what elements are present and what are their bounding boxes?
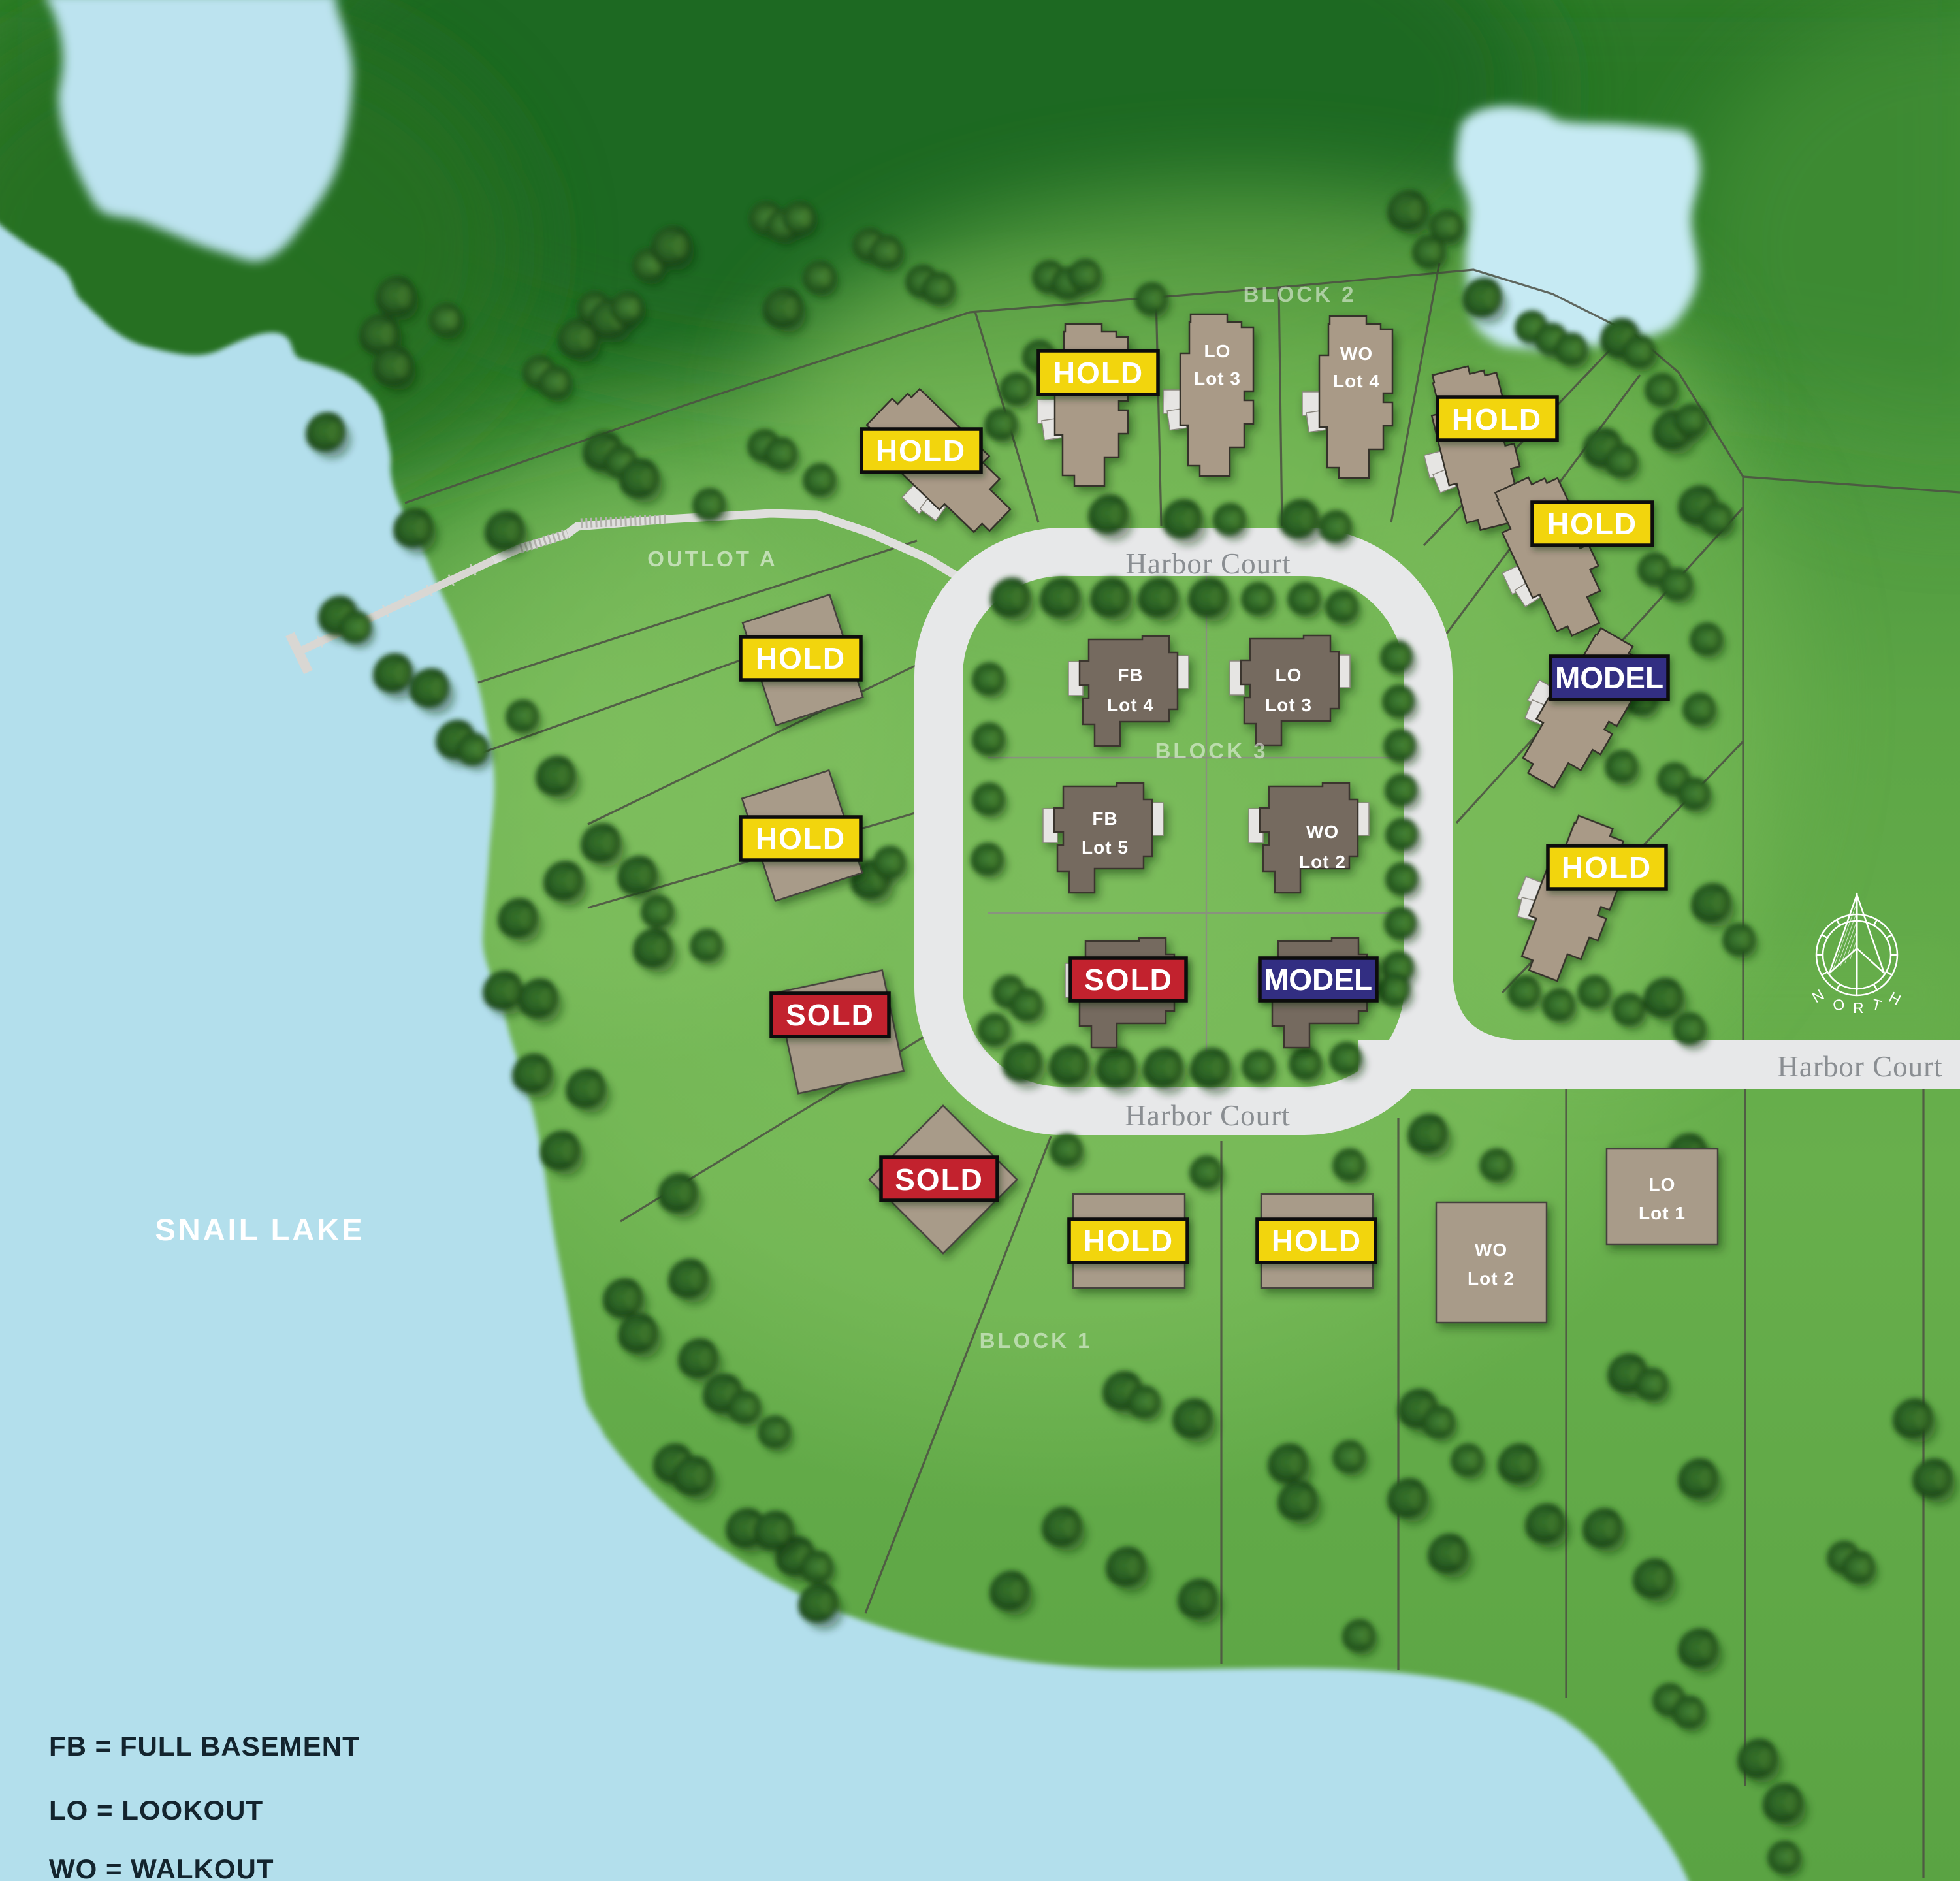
svg-text:SOLD: SOLD bbox=[1084, 963, 1173, 997]
svg-text:FB: FB bbox=[1092, 809, 1117, 829]
svg-text:HOLD: HOLD bbox=[756, 822, 846, 856]
svg-text:HOLD: HOLD bbox=[1547, 507, 1637, 541]
svg-text:FB: FB bbox=[1117, 665, 1143, 685]
svg-text:Lot 5: Lot 5 bbox=[1082, 837, 1129, 858]
svg-text:LO: LO bbox=[1276, 665, 1302, 685]
svg-text:Harbor Court: Harbor Court bbox=[1125, 1099, 1290, 1132]
svg-text:BLOCK 2: BLOCK 2 bbox=[1244, 282, 1357, 306]
svg-text:BLOCK 3: BLOCK 3 bbox=[1155, 739, 1268, 763]
svg-text:R: R bbox=[1853, 999, 1864, 1016]
svg-text:HOLD: HOLD bbox=[1562, 850, 1652, 884]
svg-text:FB = FULL BASEMENT: FB = FULL BASEMENT bbox=[49, 1731, 360, 1761]
svg-text:Lot 1: Lot 1 bbox=[1639, 1203, 1686, 1223]
svg-text:Lot 4: Lot 4 bbox=[1333, 371, 1380, 391]
svg-text:BLOCK 1: BLOCK 1 bbox=[980, 1328, 1093, 1353]
svg-text:HOLD: HOLD bbox=[756, 641, 846, 675]
svg-text:OUTLOT A: OUTLOT A bbox=[647, 547, 777, 571]
svg-text:Lot 3: Lot 3 bbox=[1265, 695, 1312, 715]
svg-text:Harbor Court: Harbor Court bbox=[1777, 1050, 1942, 1083]
svg-text:WO: WO bbox=[1340, 344, 1373, 364]
svg-text:MODEL: MODEL bbox=[1555, 661, 1663, 695]
svg-text:Lot 4: Lot 4 bbox=[1107, 695, 1154, 715]
svg-text:WO: WO bbox=[1475, 1240, 1507, 1260]
svg-text:HOLD: HOLD bbox=[1452, 402, 1542, 436]
svg-text:Lot 3: Lot 3 bbox=[1194, 368, 1241, 389]
svg-text:SOLD: SOLD bbox=[786, 998, 875, 1032]
svg-text:LO: LO bbox=[1204, 341, 1231, 361]
svg-text:LO = LOOKOUT: LO = LOOKOUT bbox=[49, 1795, 263, 1825]
svg-text:HOLD: HOLD bbox=[876, 434, 966, 468]
svg-text:HOLD: HOLD bbox=[1272, 1224, 1362, 1258]
svg-text:HOLD: HOLD bbox=[1053, 356, 1144, 390]
svg-text:MODEL: MODEL bbox=[1264, 963, 1372, 997]
svg-text:Lot 2: Lot 2 bbox=[1299, 852, 1346, 872]
svg-text:LO: LO bbox=[1649, 1174, 1676, 1195]
svg-text:Harbor Court: Harbor Court bbox=[1125, 547, 1291, 580]
svg-text:WO = WALKOUT: WO = WALKOUT bbox=[49, 1854, 274, 1881]
svg-text:SOLD: SOLD bbox=[895, 1163, 984, 1197]
svg-text:WO: WO bbox=[1306, 822, 1339, 842]
svg-text:SNAIL LAKE: SNAIL LAKE bbox=[155, 1212, 364, 1247]
svg-text:Lot 2: Lot 2 bbox=[1468, 1268, 1515, 1289]
svg-text:HOLD: HOLD bbox=[1084, 1224, 1174, 1258]
